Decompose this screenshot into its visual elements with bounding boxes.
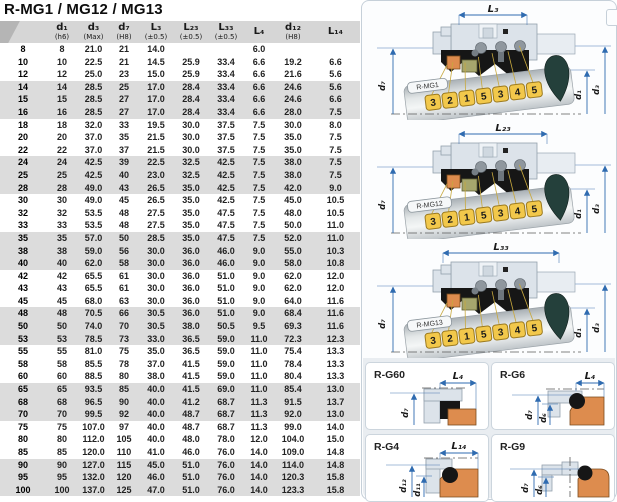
table-cell: 7.5 [243,156,275,169]
table-row: 141428.52517.028.433.46.624.65.6 [0,81,360,94]
table-cell: 37.0 [78,144,109,157]
dim-label-d11: d₁₁ [413,483,423,497]
table-cell: 30.0 [139,282,173,295]
table-cell: 60 [46,370,78,383]
table-row: 121225.02315.025.933.46.621.65.6 [0,68,360,81]
table-cell: 22.5 [139,156,173,169]
table-cell: 37.5 [209,119,243,132]
table-cell: 11.0 [243,383,275,396]
table-cell: 51.0 [173,459,209,472]
col-header-L33: L₃₃(±0.5) [209,21,243,43]
table-cell: 27.5 [139,219,173,232]
table-cell: 5.6 [311,68,360,81]
table-cell: 35 [46,232,78,245]
table-cell: 123.3 [275,484,311,497]
table-cell: 48 [109,219,139,232]
detail-name: R-G6 [500,369,525,381]
table-cell: 48.7 [173,408,209,421]
table-cell: 51.0 [173,484,209,497]
table-cell: 37.0 [78,131,109,144]
table-cell: 80 [46,433,78,446]
table-cell: 45 [46,295,78,308]
table-cell: 9.0 [243,270,275,283]
table-cell: 24 [46,156,78,169]
dim-label-L33: L₃₃ [493,242,509,253]
table-cell: 21.5 [139,144,173,157]
table-cell: 33.0 [139,333,173,346]
table-cell: 14.0 [243,459,275,472]
row-label-cell: 40 [0,257,46,270]
detail-view-r-g6: R-G6 L₄ d₇ d₆ [491,362,615,430]
table-cell: 53 [46,333,78,346]
table-cell: 22 [46,144,78,157]
table-cell [311,43,360,56]
table-cell [209,43,243,56]
table-cell: 40.0 [139,433,173,446]
table-cell: 48 [109,207,139,220]
table-cell: 7.5 [243,182,275,195]
table-cell: 11.0 [243,333,275,346]
row-label-cell: 35 [0,232,46,245]
table-cell: 15.0 [139,68,173,81]
table-cell: 11.0 [311,219,360,232]
table-cell: 14.0 [311,421,360,434]
dim-label-d6: d₆ [539,413,549,423]
row-label-cell: 75 [0,421,46,434]
table-cell: 76.0 [209,471,243,484]
table-cell: 10.3 [311,245,360,258]
table-cell: 10.8 [311,257,360,270]
dim-label-L14: L₁₄ [451,441,466,452]
table-cell: 33.4 [209,68,243,81]
table-cell: 65.5 [78,270,109,283]
table-cell: 6.6 [243,93,275,106]
table-cell: 48.0 [173,433,209,446]
table-cell: 14 [46,81,78,94]
table-row: 585885.57837.041.559.011.078.413.3 [0,358,360,371]
table-cell: 58 [46,358,78,371]
table-cell: 30.0 [173,144,209,157]
row-label-cell: 18 [0,119,46,132]
dim-label-L3: L₃ [488,4,499,15]
table-cell: 36.0 [173,307,209,320]
table-cell: 42.5 [78,169,109,182]
table-cell: 17.0 [139,106,173,119]
table-cell: 62.0 [78,257,109,270]
table-cell: 35.0 [173,219,209,232]
table-cell: 14.0 [139,43,173,56]
table-cell: 12.3 [311,333,360,346]
table-row: 454568.06330.036.051.09.064.011.6 [0,295,360,308]
table-cell: 48.0 [275,207,311,220]
row-label-cell: 53 [0,333,46,346]
table-cell: 13.0 [311,383,360,396]
table-cell: 125 [109,484,139,497]
table-cell: 88.5 [78,370,109,383]
row-label-cell: 68 [0,396,46,409]
table-cell: 65 [46,383,78,396]
table-cell: 9.5 [243,320,275,333]
dim-label-d6: d₆ [535,485,545,495]
col-header-L23: L₂₃(±0.5) [173,21,209,43]
table-cell: 132.0 [78,471,109,484]
table-cell: 33.4 [209,56,243,69]
row-label-cell: 42 [0,270,46,283]
table-cell: 15.0 [311,433,360,446]
table-cell: 16 [46,106,78,119]
table-cell: 38.0 [173,320,209,333]
table-cell: 11.3 [243,396,275,409]
table-cell: 91.5 [275,396,311,409]
table-row: 404062.05830.036.046.09.058.010.8 [0,257,360,270]
table-cell: 51.0 [173,471,209,484]
table-cell: 93.5 [78,383,109,396]
row-label-cell: 32 [0,207,46,220]
table-body: 8821.02114.06.0101022.52114.525.933.46.6… [0,43,360,496]
detail-view-r-g4: R-G4 L₁₄ d₁₂ d₁₁ [365,434,489,502]
table-cell: 62.0 [275,282,311,295]
table-row: 606088.58038.041.559.011.080.413.3 [0,370,360,383]
table-cell: 32 [46,207,78,220]
table-cell: 40 [46,257,78,270]
table-row: 303049.04526.535.042.57.545.010.5 [0,194,360,207]
table-header-row: d₁(h6) d₃(Max) d₇(H8) L₃(±0.5) L₂₃(±0.5)… [0,21,360,43]
table-cell: 24.6 [275,81,311,94]
table-row: 424265.56130.036.051.09.062.012.0 [0,270,360,283]
table-cell: 105 [109,433,139,446]
table-cell: 11.0 [311,232,360,245]
table-row: 242442.53922.532.542.57.538.07.5 [0,156,360,169]
table-cell: 41.5 [173,370,209,383]
table-cell: 14.0 [243,484,275,497]
table-cell: 99.5 [78,408,109,421]
table-cell: 9.0 [243,257,275,270]
row-label-cell: 58 [0,358,46,371]
table-cell: 66 [109,307,139,320]
dim-label-L4: L₄ [585,371,596,382]
page: R-MG1 / MG12 / MG13 d₁(h6) d₃(Max) d₇(H8… [0,0,617,500]
table-cell: 51.0 [209,307,243,320]
table-cell: 68.7 [209,408,243,421]
table-cell: 96.5 [78,396,109,409]
table-cell: 33.4 [209,81,243,94]
table-cell: 35.0 [275,131,311,144]
table-cell: 12.0 [311,270,360,283]
table-cell: 120.3 [275,471,311,484]
table-row: 7575107.09740.048.768.711.399.014.0 [0,421,360,434]
table-row: 535378.57333.036.559.011.072.312.3 [0,333,360,346]
table-cell: 115 [109,459,139,472]
table-cell: 12.0 [243,433,275,446]
table-cell: 25.9 [173,56,209,69]
table-cell: 10.5 [311,207,360,220]
table-cell: 137.0 [78,484,109,497]
row-label-cell: 60 [0,370,46,383]
row-label-cell: 80 [0,433,46,446]
row-label-cell: 48 [0,307,46,320]
table-cell: 75 [46,421,78,434]
table-cell: 11.6 [311,307,360,320]
table-cell: 36.0 [173,282,209,295]
table-cell: 9.0 [243,282,275,295]
table-cell: 28.4 [173,81,209,94]
table-cell: 64.0 [275,295,311,308]
table-cell: 14.8 [311,459,360,472]
table-cell: 28.0 [275,106,311,119]
table-cell: 33 [109,119,139,132]
table-cell: 10 [46,56,78,69]
detail-name: R-G60 [374,369,405,381]
table-cell: 6.6 [311,93,360,106]
row-label-cell: 24 [0,156,46,169]
row-label-cell: 55 [0,345,46,358]
table-cell: 35 [109,131,139,144]
table-cell: 6.6 [243,81,275,94]
table-cell: 28.5 [78,81,109,94]
table-cell: 37.0 [139,358,173,371]
row-label-cell: 90 [0,459,46,472]
table-cell: 90 [46,459,78,472]
table-cell: 107.0 [78,421,109,434]
table-cell: 15.8 [311,484,360,497]
table-cell: 57.0 [78,232,109,245]
row-label-cell: 43 [0,282,46,295]
table-cell: 26.5 [139,182,173,195]
table-cell: 78 [109,358,139,371]
table-row: 505074.07030.538.050.59.569.311.6 [0,320,360,333]
table-cell: 41.0 [139,446,173,459]
table-cell: 7.5 [243,194,275,207]
table-cell: 7.5 [311,169,360,182]
table-cell: 32.5 [173,156,209,169]
seal-diagram-r-mg12: L₂₃ R-MG12 [363,121,615,239]
table-cell: 30.0 [173,119,209,132]
table-cell: 68.4 [275,307,311,320]
table-cell: 5.6 [311,81,360,94]
table-cell: 7.5 [311,156,360,169]
table-cell: 50.0 [275,219,311,232]
table-cell: 42.5 [209,169,243,182]
table-cell: 36.0 [173,257,209,270]
row-label-cell: 25 [0,169,46,182]
table-row: 202037.03521.530.037.57.535.07.5 [0,131,360,144]
table-cell: 120 [109,471,139,484]
table-cell: 70 [46,408,78,421]
table-cell: 40.0 [139,396,173,409]
table-cell: 32.5 [173,169,209,182]
table-row: 252542.54023.032.542.57.538.07.5 [0,169,360,182]
table-cell: 7.5 [243,232,275,245]
row-label-cell: 28 [0,182,46,195]
table-cell: 21 [109,43,139,56]
table-cell: 25.0 [78,68,109,81]
table-cell: 58 [109,257,139,270]
table-cell: 19.2 [275,56,311,69]
dim-label-L23: L₂₃ [495,123,511,134]
table-cell: 7.5 [311,106,360,119]
table-cell: 47.5 [209,219,243,232]
table-cell: 36.0 [173,295,209,308]
table-cell: 70.5 [78,307,109,320]
table-row: 181832.03319.530.037.57.530.08.0 [0,119,360,132]
table-cell: 72.3 [275,333,311,346]
row-label-cell: 85 [0,446,46,459]
table-cell: 33 [46,219,78,232]
table-cell: 37.5 [209,144,243,157]
table-cell: 81.0 [78,345,109,358]
col-header-L4: L₄ [243,21,275,43]
table-row: 161628.52717.028.433.46.628.07.5 [0,106,360,119]
table-cell: 27.5 [139,207,173,220]
table-cell: 14.0 [243,471,275,484]
table-cell: 100 [46,484,78,497]
dim-label-d7: d₇ [401,408,411,418]
table-cell: 48.7 [173,421,209,434]
table-cell: 21.0 [78,43,109,56]
table-cell: 27 [109,93,139,106]
table-cell: 7.5 [243,207,275,220]
table-row: 707099.59240.048.768.711.392.013.0 [0,408,360,421]
table-cell: 50 [109,232,139,245]
table-cell: 11.0 [243,358,275,371]
table-cell: 53.5 [78,219,109,232]
table-cell: 28.5 [78,93,109,106]
col-header-L3: L₃(±0.5) [139,21,173,43]
table-cell: 13.3 [311,345,360,358]
table-cell: 38.0 [139,370,173,383]
table-cell: 11.6 [311,295,360,308]
table-cell: 13.0 [311,408,360,421]
table-cell: 36.0 [173,270,209,283]
table-cell: 49.0 [78,194,109,207]
dim-label-d12: d₁₂ [399,479,409,493]
table-cell: 23.0 [139,169,173,182]
table-row: 222237.03721.530.037.57.535.07.5 [0,144,360,157]
table-row: 333353.54827.535.047.57.550.011.0 [0,219,360,232]
table-cell: 97 [109,421,139,434]
table-cell: 30.5 [139,320,173,333]
table-cell: 11.0 [243,345,275,358]
table-cell: 52.0 [275,232,311,245]
table-cell: 6.6 [243,68,275,81]
table-cell: 47.5 [209,207,243,220]
table-cell: 33.4 [209,93,243,106]
table-cell: 11.6 [311,320,360,333]
table-cell: 76.0 [209,446,243,459]
table-cell: 17.0 [139,93,173,106]
row-label-cell: 65 [0,383,46,396]
table-cell: 12.0 [311,282,360,295]
table-cell: 30.0 [173,131,209,144]
table-cell: 59.0 [209,345,243,358]
table-cell: 47.0 [139,484,173,497]
table-cell: 39 [109,156,139,169]
table-cell: 51.0 [209,295,243,308]
row-label-cell: 22 [0,144,46,157]
table-cell: 46.0 [139,471,173,484]
row-label-cell: 38 [0,245,46,258]
table-cell: 55 [46,345,78,358]
table-cell: 7.5 [311,144,360,157]
table-cell: 114.0 [275,459,311,472]
table-cell: 36.5 [173,345,209,358]
row-label-cell: 16 [0,106,46,119]
seal-diagram-r-mg13: L₃₃ R-MG13 [363,240,615,358]
dim-label-d7: d₇ [521,483,531,493]
dim-label-L4: L₄ [453,371,464,382]
table-cell: 68.7 [209,396,243,409]
table-cell: 42.5 [78,156,109,169]
page-title: R-MG1 / MG12 / MG13 [4,1,163,18]
table-cell: 38.0 [275,169,311,182]
table-cell: 90 [109,396,139,409]
table-cell: 45.0 [139,459,173,472]
dimension-table: d₁(h6) d₃(Max) d₇(H8) L₃(±0.5) L₂₃(±0.5)… [0,21,360,496]
row-label-cell: 20 [0,131,46,144]
table-cell: 28.5 [78,106,109,119]
table-cell: 10.5 [311,194,360,207]
table-cell: 61 [109,270,139,283]
table-cell: 80 [109,370,139,383]
seal-diagram-r-mg1: L₃ R-MG1 [363,2,615,120]
table-cell: 74.0 [78,320,109,333]
table-cell: 6.6 [311,56,360,69]
table-cell: 30.0 [139,270,173,283]
col-header-d7: d₇(H8) [109,21,139,43]
table-cell: 21 [109,56,139,69]
table-cell: 104.0 [275,433,311,446]
table-cell: 36.0 [173,245,209,258]
table-row: 323253.54827.535.047.57.548.010.5 [0,207,360,220]
row-label-cell: 50 [0,320,46,333]
table-cell: 55.0 [275,245,311,258]
table-row: 383859.05630.036.046.09.055.010.3 [0,245,360,258]
table-cell: 59.0 [78,245,109,258]
table-cell: 80.4 [275,370,311,383]
table-cell: 30.5 [139,307,173,320]
table-cell: 40.0 [139,421,173,434]
table-cell: 63 [109,295,139,308]
table-cell: 35.0 [173,232,209,245]
table-row: 484870.56630.536.051.09.068.411.6 [0,307,360,320]
table-cell: 15.8 [311,471,360,484]
table-cell: 85.5 [78,358,109,371]
table-cell: 38.0 [275,156,311,169]
table-cell: 40.0 [139,408,173,421]
table-cell: 75.4 [275,345,311,358]
diagram-panel: L₃ R-MG1 L₂₃ R-MG12 [361,0,617,500]
table-cell: 11.3 [243,408,275,421]
table-cell: 17.0 [139,81,173,94]
table-cell: 73 [109,333,139,346]
table-row: 8821.02114.06.0 [0,43,360,56]
table-cell: 46.0 [209,257,243,270]
table-cell: 42.5 [209,194,243,207]
table-row: 555581.07535.036.559.011.075.413.3 [0,345,360,358]
table-cell: 12 [46,68,78,81]
table-cell: 35.0 [173,194,209,207]
table-row: 101022.52114.525.933.46.619.26.6 [0,56,360,69]
table-cell: 6.6 [243,56,275,69]
table-cell: 47.5 [209,232,243,245]
row-label-cell: 100 [0,484,46,497]
table-cell: 99.0 [275,421,311,434]
table-cell: 70 [109,320,139,333]
table-cell: 35.0 [139,345,173,358]
table-row: 100100137.012547.051.076.014.0123.315.8 [0,484,360,497]
table-cell: 78.0 [209,433,243,446]
table-cell: 53.5 [78,207,109,220]
